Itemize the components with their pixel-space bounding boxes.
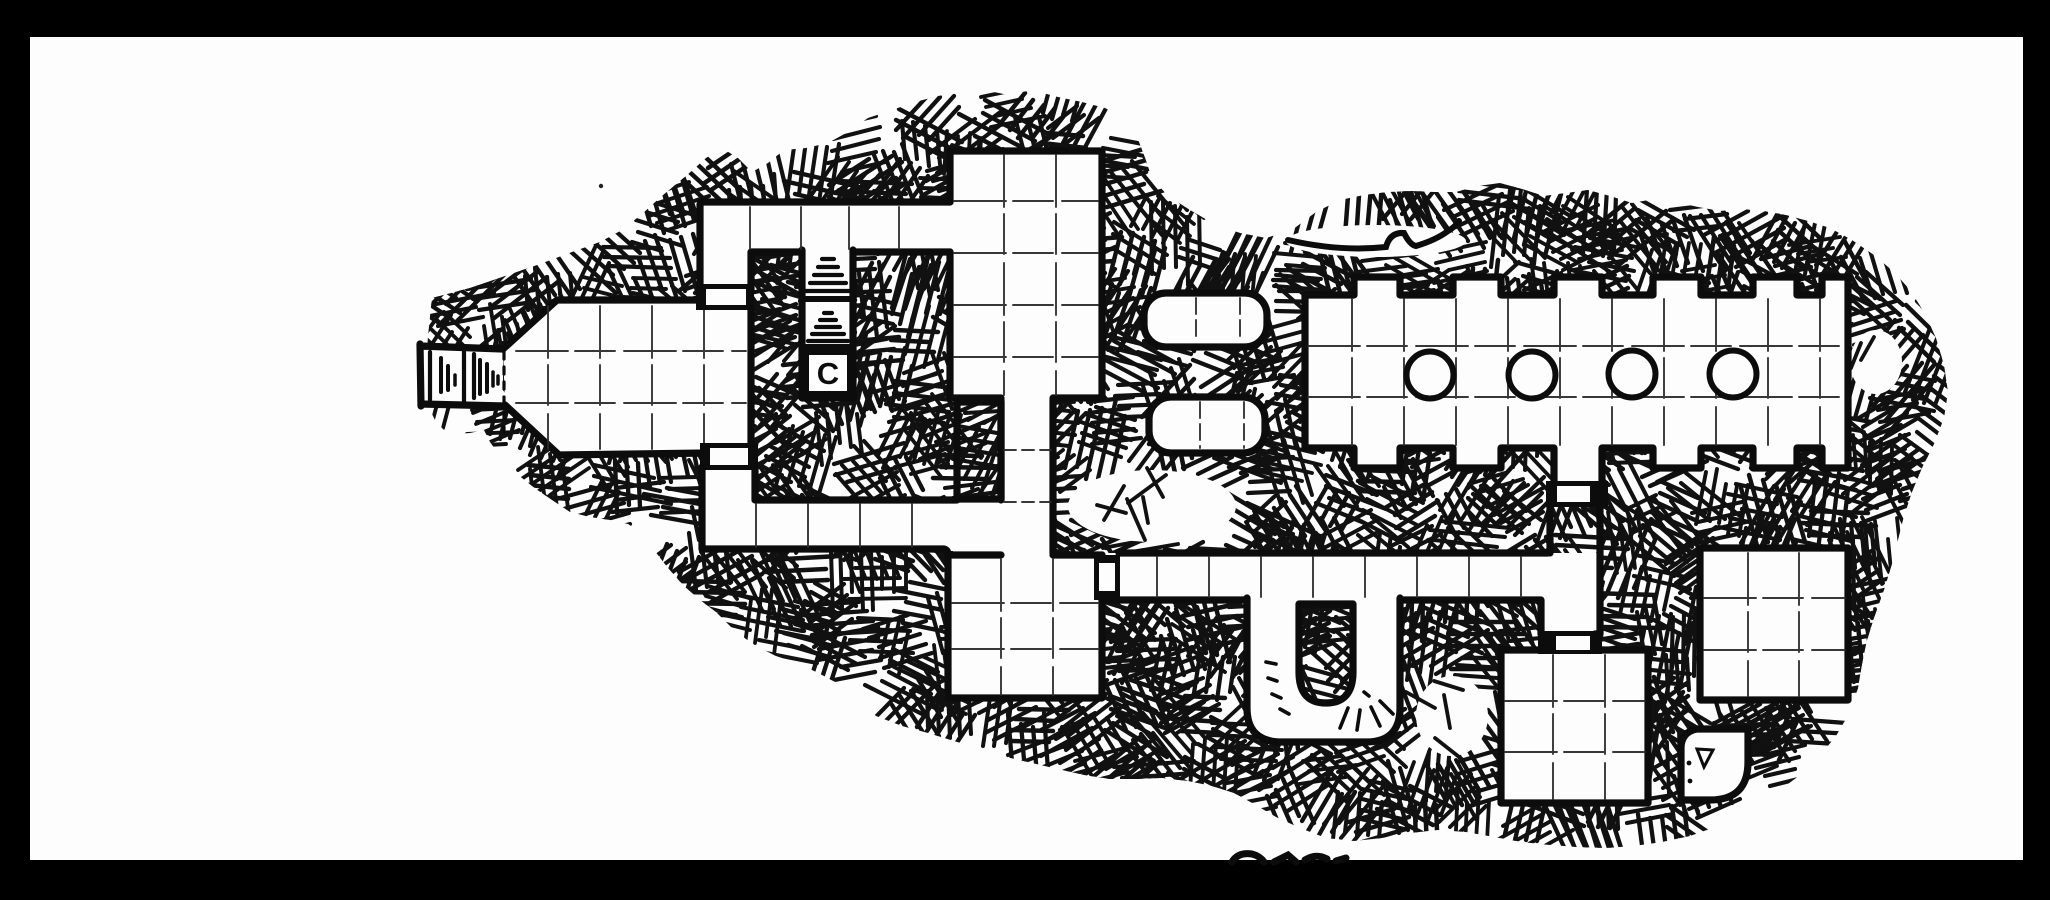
svg-text:C: C [817,356,839,391]
